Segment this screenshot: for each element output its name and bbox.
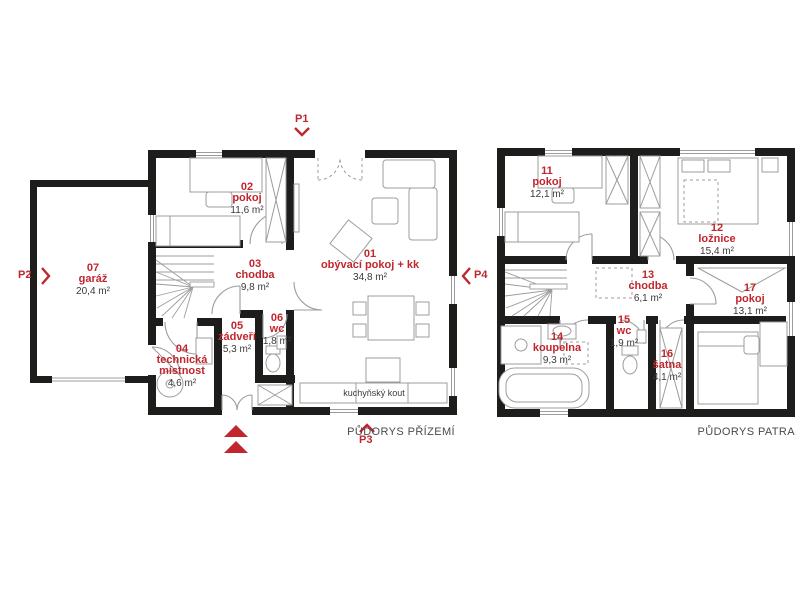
ground-floor-caption: PŮDORYS PŘÍZEMÍ — [347, 426, 455, 438]
upper-door-gaps — [560, 276, 695, 325]
room11-furniture — [505, 156, 628, 242]
p1-arrow-icon — [295, 128, 309, 135]
hall-furniture — [596, 268, 632, 298]
bathroom-fixtures — [499, 324, 589, 408]
kitchen-note: kuchyňský kout — [343, 388, 405, 398]
upper-floor-plan — [496, 147, 796, 418]
room12-furniture — [640, 156, 778, 256]
room02-furniture — [156, 158, 286, 246]
entrance-arrow-icon — [224, 425, 248, 437]
french-door — [315, 149, 365, 180]
p2-arrow-icon — [42, 268, 49, 284]
upper-stairs-icon — [505, 270, 567, 316]
p4-arrow-icon — [463, 268, 470, 284]
garage-door — [52, 375, 125, 384]
entrance-arrow-icon — [224, 441, 248, 453]
garage-walls — [30, 180, 148, 383]
marker-p2: P2 — [18, 270, 31, 281]
ground-door-gaps — [147, 317, 252, 416]
living-room-furniture — [294, 160, 447, 403]
closet-furniture — [660, 328, 682, 408]
wc-fixtures — [622, 330, 646, 374]
ground-stairs-icon — [156, 256, 214, 318]
ground-floor-plan — [30, 149, 458, 416]
floor-plan-page: 01 obývací pokoj + kk 34,8 m² 02 pokoj 1… — [0, 0, 800, 600]
marker-p4: P4 — [474, 270, 487, 281]
marker-p1: P1 — [295, 114, 308, 125]
floor-plan-drawing — [0, 0, 800, 600]
upper-floor-caption: PŮDORYS PATRA — [698, 426, 796, 438]
